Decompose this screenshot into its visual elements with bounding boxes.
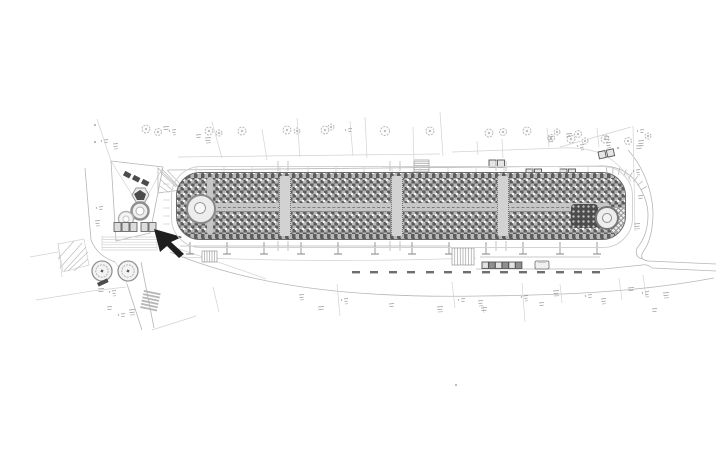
annotation-mark (646, 294, 649, 295)
annotation-mark (604, 137, 609, 138)
annotation-mark (130, 312, 135, 313)
parcel-line (522, 283, 525, 322)
market-stalls (114, 223, 156, 232)
promenade-crosswalk (391, 176, 403, 236)
annotation-mark (637, 172, 640, 173)
parcel-line (152, 316, 196, 330)
annotation-mark (438, 309, 443, 310)
parking-dash (519, 271, 527, 273)
bottom-left-parcel-a (30, 252, 58, 257)
promenade-crosswalk (497, 176, 509, 236)
annotation-mark (581, 147, 584, 148)
annotation-mark (628, 288, 634, 289)
annotation-dot (585, 295, 586, 296)
fountain-east-basin (602, 213, 612, 223)
survey-dot (94, 141, 96, 143)
parcel-line (597, 128, 599, 147)
planter-box (489, 262, 495, 268)
annotation-mark (479, 303, 483, 304)
street-tree-center (526, 130, 528, 132)
parking-dash (574, 271, 582, 273)
annotation-mark (319, 309, 324, 310)
annotation-mark (524, 296, 528, 297)
annotation-mark (122, 316, 125, 317)
annotation-mark (197, 137, 201, 138)
parcel-line (337, 284, 340, 316)
parcel-line (619, 278, 622, 300)
parcel-line (483, 306, 484, 313)
annotation-mark (478, 301, 483, 302)
annotation-dot (521, 296, 522, 297)
annotation-mark (540, 305, 544, 306)
annotation-mark (196, 135, 201, 136)
west-road-edge (85, 168, 91, 240)
street-tree-center (647, 135, 649, 137)
annotation-mark (539, 303, 544, 304)
curb-tick (641, 186, 647, 190)
parcel-line (213, 287, 219, 312)
annotation-mark (98, 289, 104, 290)
parcel-line (643, 275, 646, 297)
annotation-mark (637, 148, 642, 149)
parking-dash (407, 271, 415, 273)
annotation-mark (639, 143, 644, 144)
annotation-mark (172, 130, 176, 131)
annotation-mark (462, 301, 465, 302)
street-tree-center (550, 137, 552, 139)
parking-dash (482, 271, 490, 273)
street-tree-center (502, 131, 504, 133)
annotation-dot (642, 292, 643, 293)
southwest-road-west-edge (127, 284, 142, 330)
street-tree-center (384, 130, 386, 132)
annotation-dot (345, 129, 346, 130)
parcel-line (477, 141, 478, 155)
planter-box (495, 262, 501, 268)
plaza-circle-large-inner (136, 207, 144, 215)
curb-tick (637, 181, 642, 186)
street-tree-center (627, 140, 629, 142)
street-tree-center (488, 132, 490, 134)
annotation-mark (641, 132, 644, 133)
street-tree-center (429, 130, 431, 132)
street-tree-center (570, 138, 572, 140)
annotation-dot (118, 314, 119, 315)
kiosk-block (141, 179, 150, 187)
street-tree-center (218, 132, 220, 134)
plaza-circle-small-inner (123, 216, 129, 222)
promenade-structure (176, 172, 626, 240)
annotation-mark (602, 301, 606, 302)
planter-box (509, 262, 515, 268)
annotation-mark (121, 314, 125, 315)
fountain-west-basin (194, 202, 206, 214)
annotation-mark (652, 309, 657, 310)
parcel-line (297, 118, 300, 157)
annotation-mark (653, 311, 657, 312)
parking-dash (444, 271, 452, 273)
annotation-dot (109, 291, 110, 292)
hatch-line (160, 186, 168, 192)
shelter-box (606, 149, 614, 157)
east-road-outer-edge (628, 150, 716, 264)
street-tree-center (208, 130, 210, 132)
annotation-mark (566, 134, 572, 135)
annotation-mark (640, 130, 644, 131)
site-plan-canvas (0, 0, 718, 450)
annotation-mark (344, 299, 348, 300)
annotation-dot (577, 145, 578, 146)
annotation-mark (112, 291, 116, 292)
annotation-mark (645, 292, 649, 293)
parcel-line (365, 117, 367, 158)
parcel-line (262, 129, 267, 160)
street-tree-center (145, 128, 147, 130)
planter-box (516, 262, 522, 268)
annotation-mark (299, 295, 304, 296)
annotation-mark (206, 140, 211, 141)
annotation-mark (638, 141, 644, 142)
annotation-dot (96, 207, 97, 208)
south-arc-road (170, 252, 714, 296)
kiosk-block (123, 171, 132, 179)
annotation-mark (636, 146, 642, 147)
street-tree-center (330, 126, 332, 128)
annotation-mark (129, 310, 135, 311)
dense-planting-block (571, 204, 598, 228)
north-road-north-edge-left (178, 154, 440, 157)
annotation-mark (99, 207, 103, 208)
annotation-mark (607, 145, 611, 146)
annotation-mark (588, 295, 592, 296)
annotation-mark (664, 295, 669, 296)
annotation-mark (567, 136, 572, 137)
parcel-line (350, 121, 353, 156)
hatch-line (160, 179, 172, 190)
parcel-line (452, 282, 455, 308)
annotation-mark (96, 223, 100, 224)
fountain-east (595, 206, 619, 230)
annotation-dot (633, 170, 634, 171)
annotation-mark (606, 143, 611, 144)
shelter-box (598, 151, 606, 159)
parcel-line (413, 127, 414, 161)
south-walk-edge-2 (180, 257, 476, 261)
annotation-mark (553, 291, 559, 292)
annotation-mark (549, 139, 553, 140)
promenade-crosswalk (279, 176, 291, 236)
parcel-line (560, 284, 562, 303)
annotation-mark (104, 140, 108, 141)
annotation-mark (635, 226, 640, 227)
shelter-pair (598, 149, 615, 159)
survey-dot (455, 384, 457, 386)
annotation-mark (163, 127, 169, 128)
parking-dash (500, 271, 508, 273)
annotation-mark (601, 299, 606, 300)
street-tree-center (157, 131, 159, 133)
survey-dot (94, 124, 96, 126)
annotation-mark (300, 297, 304, 298)
street-tree-center (324, 129, 326, 131)
annotation-mark (105, 142, 108, 143)
annotation-mark (100, 209, 103, 210)
annotation-mark (345, 301, 348, 302)
annotation-mark (634, 224, 640, 225)
annotation-mark (580, 145, 584, 146)
annotation-mark (461, 299, 465, 300)
parking-dash (463, 271, 471, 273)
annotation-mark (113, 293, 116, 294)
parcel-line (440, 112, 443, 156)
annotation-mark (205, 138, 211, 139)
annotation-mark (437, 307, 443, 308)
parking-dash (537, 271, 545, 273)
annotation-mark (114, 146, 118, 147)
annotation-mark (554, 293, 559, 294)
annotation-mark (348, 129, 352, 130)
street-tree-center (584, 140, 586, 142)
annotation-mark (482, 310, 487, 311)
annotation-dot (101, 140, 102, 141)
west-road-corner (91, 240, 115, 262)
parking-dash (352, 271, 360, 273)
annotation-mark (638, 196, 643, 197)
annotation-mark (349, 131, 352, 132)
annotation-mark (108, 309, 112, 310)
street-tree-center (556, 131, 558, 133)
annotation-mark (663, 293, 669, 294)
annotation-mark (589, 297, 592, 298)
parking-dash (556, 271, 564, 273)
parking-dash (370, 271, 378, 273)
annotation-mark (95, 221, 100, 222)
annotation-mark (636, 170, 640, 171)
annotation-mark (113, 144, 118, 145)
street-tree-center (286, 129, 288, 131)
annotation-dot (169, 130, 170, 131)
annotation-dot (637, 130, 638, 131)
annotation-mark (605, 139, 609, 140)
annotation-mark (548, 137, 553, 138)
parking-dash (592, 271, 600, 273)
annotation-mark (164, 129, 169, 130)
annotation-mark (629, 290, 634, 291)
annotation-mark (481, 308, 487, 309)
annotation-mark (107, 307, 112, 308)
annotation-mark (318, 307, 324, 308)
parking-dash (389, 271, 397, 273)
hatch-line (60, 243, 82, 268)
annotation-mark (173, 132, 176, 133)
parcel-line (212, 122, 222, 158)
fountain-west (186, 194, 216, 224)
annotation-mark (390, 306, 394, 307)
parking-dash (426, 271, 434, 273)
annotation-mark (99, 291, 104, 292)
street-tree-center (577, 133, 579, 135)
annotation-mark (639, 198, 643, 199)
generated-plan-items (58, 112, 669, 386)
parcel-line (502, 139, 503, 158)
kiosk-block (132, 175, 141, 183)
street-tree-center (241, 130, 243, 132)
planter-box (502, 262, 508, 268)
annotation-mark (525, 298, 528, 299)
annotation-dot (341, 299, 342, 300)
planter-box (482, 262, 488, 268)
annotation-mark (389, 304, 394, 305)
hatch-line (74, 259, 88, 271)
survey-dot (617, 147, 619, 149)
annotation-dot (458, 299, 459, 300)
